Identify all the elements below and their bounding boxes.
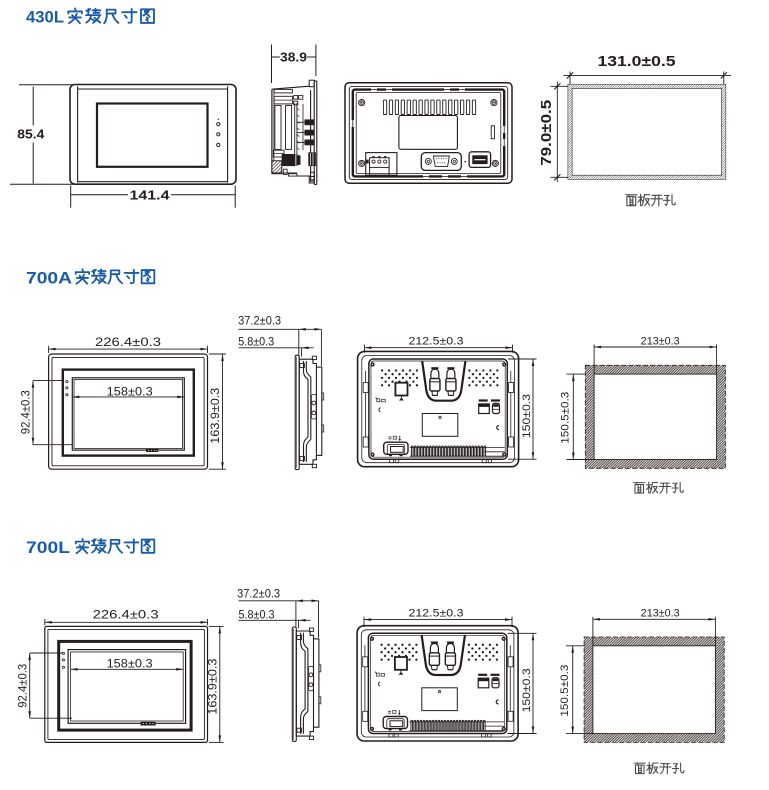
svg-text:85.4: 85.4 — [17, 128, 44, 142]
svg-text:150±0.3: 150±0.3 — [521, 394, 533, 438]
svg-text:150±0.3: 150±0.3 — [521, 668, 533, 712]
svg-text:213±0.3: 213±0.3 — [641, 335, 680, 347]
svg-text:150.5±0.3: 150.5±0.3 — [559, 665, 571, 717]
svg-text:163.9±0.3: 163.9±0.3 — [208, 388, 222, 444]
svg-text:5.8±0.3: 5.8±0.3 — [238, 335, 274, 349]
svg-text:213±0.3: 213±0.3 — [641, 608, 680, 620]
svg-text:158±0.3: 158±0.3 — [107, 384, 153, 398]
svg-text:92.4±0.3: 92.4±0.3 — [19, 390, 33, 434]
svg-text:212.5±0.3: 212.5±0.3 — [409, 607, 464, 619]
svg-text:212.5±0.3: 212.5±0.3 — [409, 335, 464, 347]
svg-text:5.8±0.3: 5.8±0.3 — [239, 608, 275, 622]
svg-text:430L: 430L — [26, 9, 64, 27]
svg-text:131.0±0.5: 131.0±0.5 — [598, 53, 676, 70]
svg-text:700A: 700A — [26, 269, 72, 287]
svg-text:226.4±0.3: 226.4±0.3 — [93, 608, 159, 622]
svg-text:141.4: 141.4 — [130, 188, 170, 202]
svg-text:37.2±0.3: 37.2±0.3 — [237, 586, 280, 600]
svg-text:158±0.3: 158±0.3 — [107, 657, 153, 671]
svg-text:79.0±0.5: 79.0±0.5 — [538, 100, 555, 166]
svg-text:700L: 700L — [26, 539, 70, 557]
svg-text:163.9±0.3: 163.9±0.3 — [205, 658, 219, 714]
svg-text:150.5±0.3: 150.5±0.3 — [560, 392, 572, 444]
svg-text:92.4±0.3: 92.4±0.3 — [15, 664, 29, 708]
svg-text:226.4±0.3: 226.4±0.3 — [95, 335, 161, 349]
svg-text:37.2±0.3: 37.2±0.3 — [238, 314, 281, 328]
svg-text:38.9: 38.9 — [280, 51, 307, 65]
